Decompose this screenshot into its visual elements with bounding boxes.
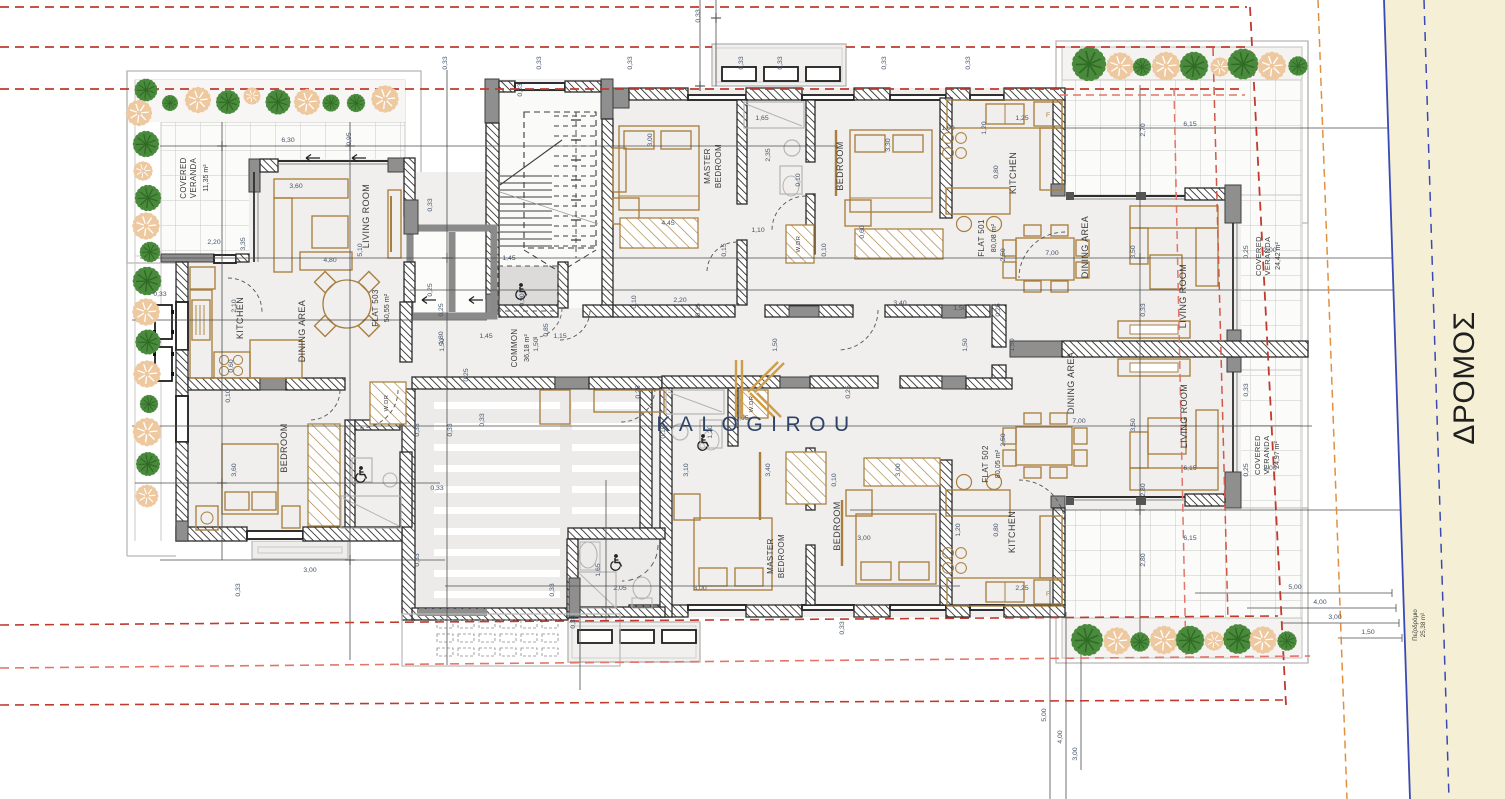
svg-text:0,33: 0,33	[1140, 303, 1147, 316]
svg-text:5,10: 5,10	[357, 243, 364, 256]
svg-text:2,80: 2,80	[1140, 553, 1147, 566]
svg-text:BEDROOM: BEDROOM	[279, 423, 289, 472]
svg-text:2,25: 2,25	[1015, 585, 1028, 592]
svg-text:0,25: 0,25	[635, 385, 642, 398]
svg-text:5,00: 5,00	[1041, 708, 1048, 721]
svg-text:0,33: 0,33	[153, 291, 166, 298]
svg-text:6,30: 6,30	[281, 137, 294, 144]
svg-text:VERANDA: VERANDA	[1263, 236, 1272, 275]
svg-text:0,25: 0,25	[995, 303, 1002, 316]
svg-text:2,70: 2,70	[1140, 123, 1147, 136]
svg-text:KITCHEN: KITCHEN	[1008, 152, 1018, 194]
svg-text:4,45: 4,45	[661, 220, 674, 227]
svg-text:LIVING ROOM: LIVING ROOM	[1178, 264, 1188, 328]
svg-text:0,33: 0,33	[442, 56, 449, 69]
svg-text:25,38 m²: 25,38 m²	[1420, 613, 1427, 637]
svg-text:1,65: 1,65	[755, 115, 768, 122]
svg-text:1,45: 1,45	[479, 333, 492, 340]
svg-text:0,33: 0,33	[839, 621, 846, 634]
svg-text:11,35 m²: 11,35 m²	[203, 164, 210, 192]
svg-text:BEDROOM: BEDROOM	[777, 534, 786, 578]
svg-text:2,00: 2,00	[1263, 247, 1276, 254]
svg-text:MASTER: MASTER	[766, 538, 775, 574]
svg-text:3,40: 3,40	[765, 463, 772, 476]
svg-text:1,10: 1,10	[751, 227, 764, 234]
svg-text:0,10: 0,10	[225, 389, 232, 402]
svg-text:1,20: 1,20	[955, 523, 962, 536]
svg-text:3,00: 3,00	[1072, 747, 1079, 760]
svg-text:0,90: 0,90	[519, 293, 526, 306]
svg-text:1,50: 1,50	[533, 338, 540, 351]
svg-text:0,60: 0,60	[228, 359, 235, 372]
svg-text:0,33: 0,33	[738, 56, 745, 69]
svg-text:0,33: 0,33	[536, 56, 543, 69]
svg-text:BEDROOM: BEDROOM	[832, 501, 842, 550]
svg-text:0,10: 0,10	[821, 243, 828, 256]
svg-text:0,15: 0,15	[721, 243, 728, 256]
svg-text:1,50: 1,50	[962, 338, 969, 351]
svg-text:0,33: 0,33	[427, 198, 434, 211]
svg-text:FLAT 502: FLAT 502	[981, 445, 990, 483]
svg-text:0,25: 0,25	[427, 283, 434, 296]
svg-text:VERANDA: VERANDA	[189, 157, 198, 198]
svg-text:4,00: 4,00	[1313, 599, 1326, 606]
svg-text:2,20: 2,20	[673, 297, 686, 304]
svg-text:0,10: 0,10	[795, 173, 802, 186]
svg-text:1,50: 1,50	[439, 338, 446, 351]
svg-text:3,00: 3,00	[647, 133, 654, 146]
svg-text:0,33: 0,33	[965, 56, 972, 69]
svg-text:COVERED: COVERED	[1254, 236, 1263, 276]
svg-text:1,45: 1,45	[502, 255, 515, 262]
svg-text:2,80: 2,80	[1140, 483, 1147, 496]
svg-text:2,05: 2,05	[613, 585, 626, 592]
svg-text:0,33: 0,33	[881, 56, 888, 69]
svg-text:0,10: 0,10	[831, 473, 838, 486]
svg-text:24,42 m²: 24,42 m²	[1275, 242, 1282, 270]
svg-text:3,00: 3,00	[303, 567, 316, 574]
svg-text:50,55 m²: 50,55 m²	[382, 293, 391, 322]
svg-text:3,50: 3,50	[1130, 245, 1137, 258]
svg-text:1,50: 1,50	[1361, 629, 1374, 636]
svg-text:0,25: 0,25	[438, 303, 445, 316]
svg-text:COVERED: COVERED	[179, 157, 188, 198]
svg-text:0,33: 0,33	[430, 485, 443, 492]
svg-text:BEDROOM: BEDROOM	[835, 141, 845, 190]
svg-text:0,33: 0,33	[235, 583, 242, 596]
svg-text:1,50: 1,50	[1009, 338, 1016, 351]
svg-text:3,00: 3,00	[857, 535, 870, 542]
svg-text:FLAT 503: FLAT 503	[371, 289, 380, 327]
svg-text:0,33: 0,33	[414, 423, 421, 436]
svg-text:0,33: 0,33	[479, 413, 486, 426]
svg-text:KITCHEN: KITCHEN	[1007, 511, 1017, 553]
svg-text:0,33: 0,33	[627, 56, 634, 69]
svg-text:W.DR: W.DR	[384, 395, 390, 412]
svg-text:W.DR: W.DR	[796, 236, 802, 253]
svg-text:3,35: 3,35	[240, 237, 247, 250]
svg-text:0,33: 0,33	[570, 615, 577, 628]
svg-text:0,10: 0,10	[631, 295, 638, 308]
svg-text:2,00: 2,00	[1263, 465, 1276, 472]
svg-text:0,33: 0,33	[695, 9, 702, 22]
svg-text:0,33: 0,33	[1243, 383, 1250, 396]
svg-text:KALOGIROU: KALOGIROU	[656, 413, 857, 436]
svg-text:1,00: 1,00	[941, 125, 954, 132]
svg-text:0,25: 0,25	[463, 368, 470, 381]
svg-text:DINING AREA: DINING AREA	[1066, 352, 1076, 414]
svg-text:3,40: 3,40	[893, 300, 906, 307]
svg-text:LIVING ROOM: LIVING ROOM	[361, 184, 371, 248]
svg-text:3,00: 3,00	[1328, 614, 1341, 621]
svg-text:3,60: 3,60	[289, 183, 302, 190]
svg-text:3,60: 3,60	[231, 463, 238, 476]
svg-text:7,00: 7,00	[1072, 418, 1085, 425]
svg-text:1,25: 1,25	[1015, 115, 1028, 122]
svg-text:0,33: 0,33	[517, 83, 524, 96]
svg-text:0,80: 0,80	[993, 165, 1000, 178]
svg-text:2,10: 2,10	[231, 299, 238, 312]
svg-text:0,95: 0,95	[346, 132, 353, 145]
svg-text:0,60: 0,60	[859, 225, 866, 238]
svg-text:36,18 m²: 36,18 m²	[524, 334, 531, 362]
svg-text:7,00: 7,00	[1045, 250, 1058, 257]
svg-text:0,85: 0,85	[543, 323, 550, 336]
svg-text:1,50: 1,50	[953, 305, 966, 312]
svg-text:BEDROOM: BEDROOM	[714, 144, 723, 188]
svg-text:DINING AREA: DINING AREA	[1080, 216, 1090, 278]
svg-text:2,50: 2,50	[1000, 433, 1007, 446]
svg-text:0,33: 0,33	[549, 583, 556, 596]
svg-text:0,33: 0,33	[447, 423, 454, 436]
svg-text:ΔΡΟΜΟΣ: ΔΡΟΜΟΣ	[1448, 311, 1481, 444]
svg-text:0,25: 0,25	[1243, 463, 1250, 476]
svg-text:6,15: 6,15	[1183, 535, 1196, 542]
svg-text:FLAT 501: FLAT 501	[977, 219, 986, 257]
svg-text:1,65: 1,65	[595, 563, 602, 576]
svg-text:1,15: 1,15	[553, 333, 566, 340]
svg-text:Πεζοδρόμιο: Πεζοδρόμιο	[1412, 609, 1419, 641]
svg-text:80,05 m²: 80,05 m²	[993, 449, 1002, 478]
svg-text:DINING AREA: DINING AREA	[297, 300, 307, 362]
svg-text:1,20: 1,20	[981, 121, 988, 134]
svg-text:4,00: 4,00	[1057, 730, 1064, 743]
svg-text:LIVING ROOM: LIVING ROOM	[1179, 384, 1189, 448]
svg-text:4,80: 4,80	[323, 257, 336, 264]
svg-text:80,08 m²: 80,08 m²	[989, 223, 998, 252]
svg-text:0,80: 0,80	[993, 523, 1000, 536]
svg-text:2,20: 2,20	[207, 239, 220, 246]
svg-text:2,50: 2,50	[1000, 248, 1007, 261]
svg-text:3,10: 3,10	[683, 463, 690, 476]
svg-text:6,15: 6,15	[1183, 121, 1196, 128]
svg-text:3,00: 3,00	[693, 585, 706, 592]
svg-text:3,50: 3,50	[1130, 418, 1137, 431]
svg-text:F: F	[1046, 112, 1050, 119]
svg-text:COVERED: COVERED	[1253, 435, 1262, 475]
svg-text:2,35: 2,35	[765, 148, 772, 161]
svg-text:3,00: 3,00	[895, 463, 902, 476]
svg-text:MASTER: MASTER	[703, 148, 712, 184]
svg-text:0,25: 0,25	[695, 303, 702, 316]
svg-text:COMMON: COMMON	[510, 329, 519, 368]
svg-text:0,33: 0,33	[414, 553, 421, 566]
svg-text:0,33: 0,33	[777, 56, 784, 69]
svg-text:5,00: 5,00	[1288, 584, 1301, 591]
svg-text:1,50: 1,50	[772, 338, 779, 351]
svg-text:3,30: 3,30	[885, 138, 892, 151]
svg-text:F: F	[1046, 591, 1050, 598]
svg-text:0,25: 0,25	[845, 385, 852, 398]
svg-text:0,25: 0,25	[1243, 245, 1250, 258]
svg-text:6,15: 6,15	[1183, 465, 1196, 472]
